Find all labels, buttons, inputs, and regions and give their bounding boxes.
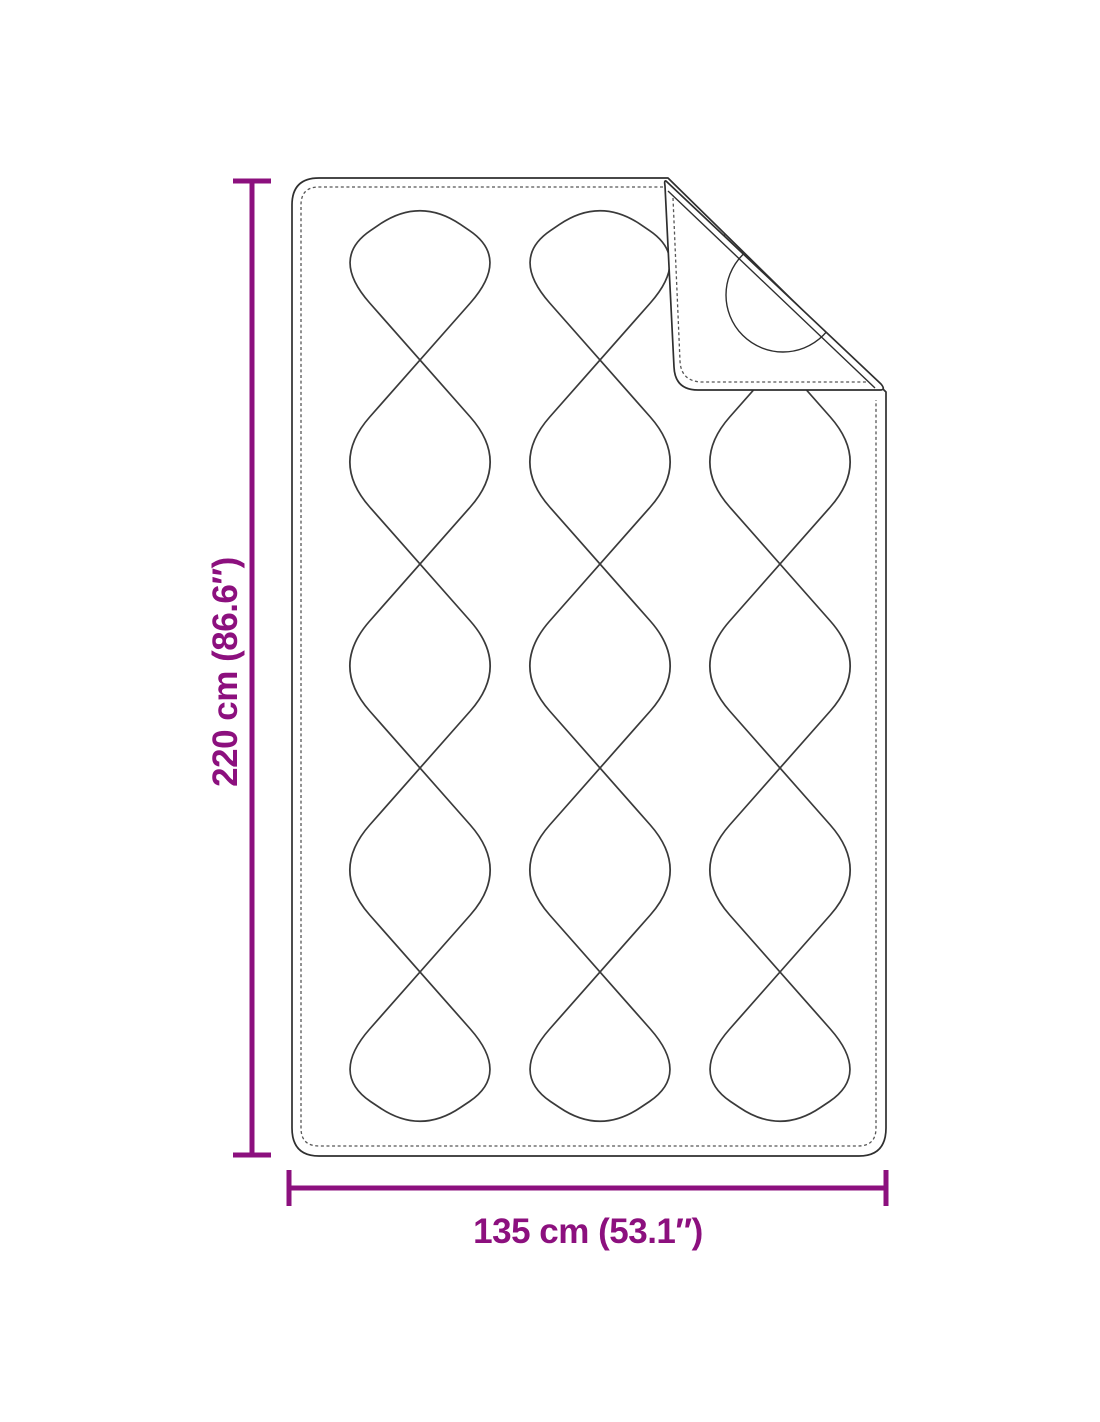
diagram-canvas: 220 cm (86.6″) 135 cm (53.1″): [0, 0, 1100, 1422]
width-dimension-label: 135 cm (53.1″): [473, 1212, 703, 1251]
product-diagram: 220 cm (86.6″) 135 cm (53.1″): [0, 0, 1100, 1422]
height-dimension: 220 cm (86.6″): [206, 181, 271, 1155]
width-dimension: 135 cm (53.1″): [289, 1170, 886, 1251]
height-dimension-label: 220 cm (86.6″): [206, 557, 245, 787]
folded-corner: [665, 181, 884, 390]
